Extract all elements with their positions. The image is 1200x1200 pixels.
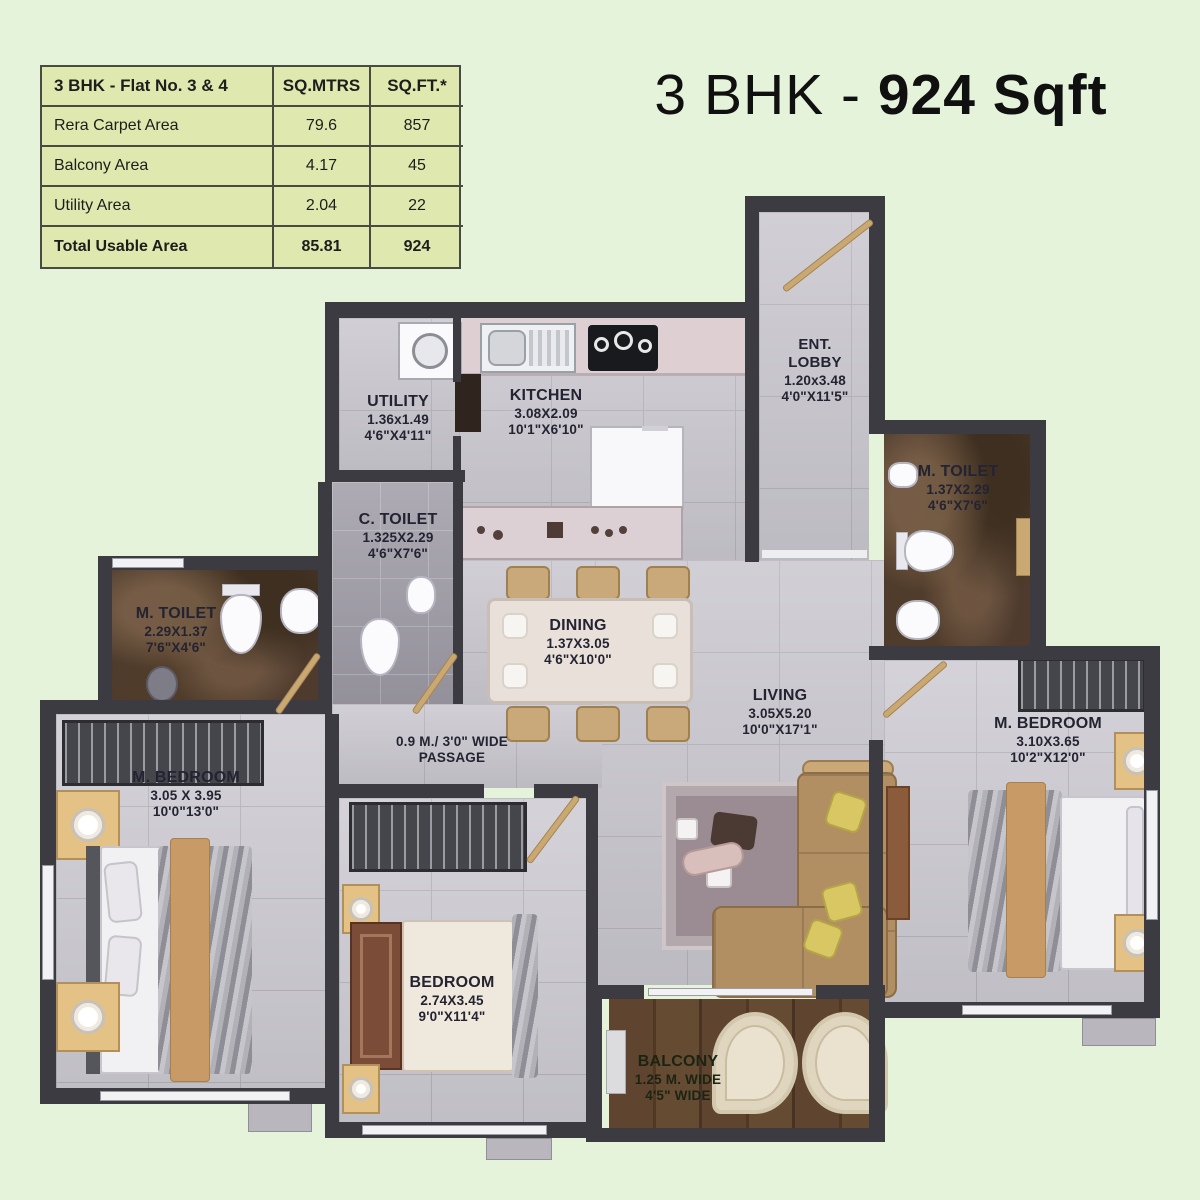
window (962, 1005, 1112, 1015)
wall (869, 212, 885, 434)
dining-chair (646, 566, 690, 600)
kitchen-island-counter (461, 506, 683, 560)
counter-item (619, 526, 627, 534)
wall (869, 985, 885, 1142)
room-label-m-bedroom-right: M. BEDROOM 3.10X3.65 10'2"X12'0" (958, 714, 1138, 766)
wardrobe-icon (349, 802, 527, 872)
room-label-m-toilet-right: M. TOILET 1.37X2.29 4'6"X7'6" (892, 462, 1024, 514)
counter-item (493, 530, 503, 540)
fridge-icon (590, 426, 684, 510)
table-row-label: Utility Area (42, 187, 274, 227)
wall (325, 302, 759, 318)
sink-drainboard (529, 330, 569, 366)
window (42, 865, 54, 980)
wall (595, 1128, 885, 1142)
sink-icon (480, 323, 576, 373)
washbasin-icon (406, 576, 436, 614)
wall (869, 420, 1046, 434)
room-label-living: LIVING 3.05X5.20 10'0"X17'1" (700, 686, 860, 738)
washer-drum (412, 333, 448, 369)
room-label-passage: 0.9 M./ 3'0" WIDE PASSAGE (372, 734, 532, 767)
wall (745, 212, 759, 562)
wall (1030, 646, 1160, 660)
lobby-threshold (762, 550, 867, 558)
window (362, 1125, 547, 1135)
wall (586, 985, 602, 1142)
stove-icon (588, 325, 658, 371)
table-row-sqm: 4.17 (274, 147, 371, 187)
page-title: 3 BHK - 924 Sqft (598, 62, 1164, 128)
wall (745, 196, 885, 212)
window (1146, 790, 1158, 920)
nightstand (56, 982, 120, 1052)
area-table: 3 BHK - Flat No. 3 & 4 SQ.MTRS SQ.FT.* R… (40, 65, 461, 269)
shower-drain (146, 666, 178, 702)
table-row-sqft: 45 (371, 147, 463, 187)
lamp-icon (71, 1000, 105, 1034)
table-row-sqm-total: 85.81 (274, 227, 371, 267)
tv-unit-icon (886, 786, 910, 920)
burner (594, 337, 609, 352)
counter-item (477, 526, 485, 534)
wall (869, 740, 883, 1002)
ac-ledge (1082, 1018, 1156, 1046)
ac-ledge (248, 1102, 312, 1132)
counter-item (547, 522, 563, 538)
room-label-c-toilet: C. TOILET 1.325X2.29 4'6"X7'6" (332, 510, 464, 562)
wardrobe-icon (1018, 658, 1146, 712)
floor-plan-page: 3 BHK - Flat No. 3 & 4 SQ.MTRS SQ.FT.* R… (0, 0, 1200, 1200)
bed-runner (170, 838, 210, 1082)
bed-pillow (103, 860, 143, 923)
nightstand (342, 1064, 380, 1114)
table-header-sqmtrs: SQ.MTRS (274, 67, 371, 107)
counter-item (591, 526, 599, 534)
wall (1030, 420, 1046, 660)
room-label-balcony: BALCONY 1.25 M. WIDE 4'5" WIDE (608, 1052, 748, 1104)
dining-chair (646, 706, 690, 742)
dining-chair (506, 566, 550, 600)
table-row-sqm: 79.6 (274, 107, 371, 147)
room-label-m-toilet-left: M. TOILET 2.29X1.37 7'6"X4'6" (110, 604, 242, 656)
washbasin-icon (280, 588, 322, 634)
room-label-kitchen: KITCHEN 3.08X2.09 10'1"X6'10" (478, 386, 614, 438)
ac-ledge (486, 1138, 552, 1160)
table-row-sqft: 857 (371, 107, 463, 147)
wall (325, 714, 339, 1138)
title-area: 924 Sqft (878, 63, 1108, 127)
room-label-utility: UTILITY 1.36x1.49 4'6"X4'11" (330, 392, 466, 444)
fridge-handle (642, 426, 668, 431)
room-label-bedroom: BEDROOM 2.74X3.45 9'0"X11'4" (372, 973, 532, 1025)
sink-bowl (488, 330, 526, 366)
wall (869, 646, 1046, 660)
wall (332, 784, 484, 798)
title-prefix: 3 BHK - (654, 63, 877, 127)
wall (325, 470, 465, 482)
room-label-ent-lobby: ENT. LOBBY 1.20x3.48 4'0"X11'5" (770, 336, 860, 406)
table-row-sqft-total: 924 (371, 227, 463, 267)
table-row-sqft: 22 (371, 187, 463, 227)
room-label-dining: DINING 1.37X3.05 4'6"X10'0" (500, 616, 656, 668)
dining-chair (576, 706, 620, 742)
lamp-icon (349, 1077, 373, 1101)
dining-chair (576, 566, 620, 600)
window (112, 558, 184, 568)
table-row-label: Balcony Area (42, 147, 274, 187)
side-table (676, 818, 698, 840)
wall (453, 318, 461, 382)
window (100, 1091, 290, 1101)
table-header-sqft: SQ.FT.* (371, 67, 463, 107)
table-row-sqm: 2.04 (274, 187, 371, 227)
bed-runner (1006, 782, 1046, 978)
table-row-label: Rera Carpet Area (42, 107, 274, 147)
burner (614, 331, 633, 350)
table-row-label-total: Total Usable Area (42, 227, 274, 267)
sliding-door (648, 988, 813, 996)
counter-item (605, 529, 613, 537)
burner (638, 339, 652, 353)
table-header-flat: 3 BHK - Flat No. 3 & 4 (42, 67, 274, 107)
lamp-icon (349, 897, 373, 921)
wall (318, 482, 332, 714)
washbasin-icon (896, 600, 940, 640)
room-label-m-bedroom-left: M. BEDROOM 3.05 X 3.95 10'0"13'0" (96, 768, 276, 820)
